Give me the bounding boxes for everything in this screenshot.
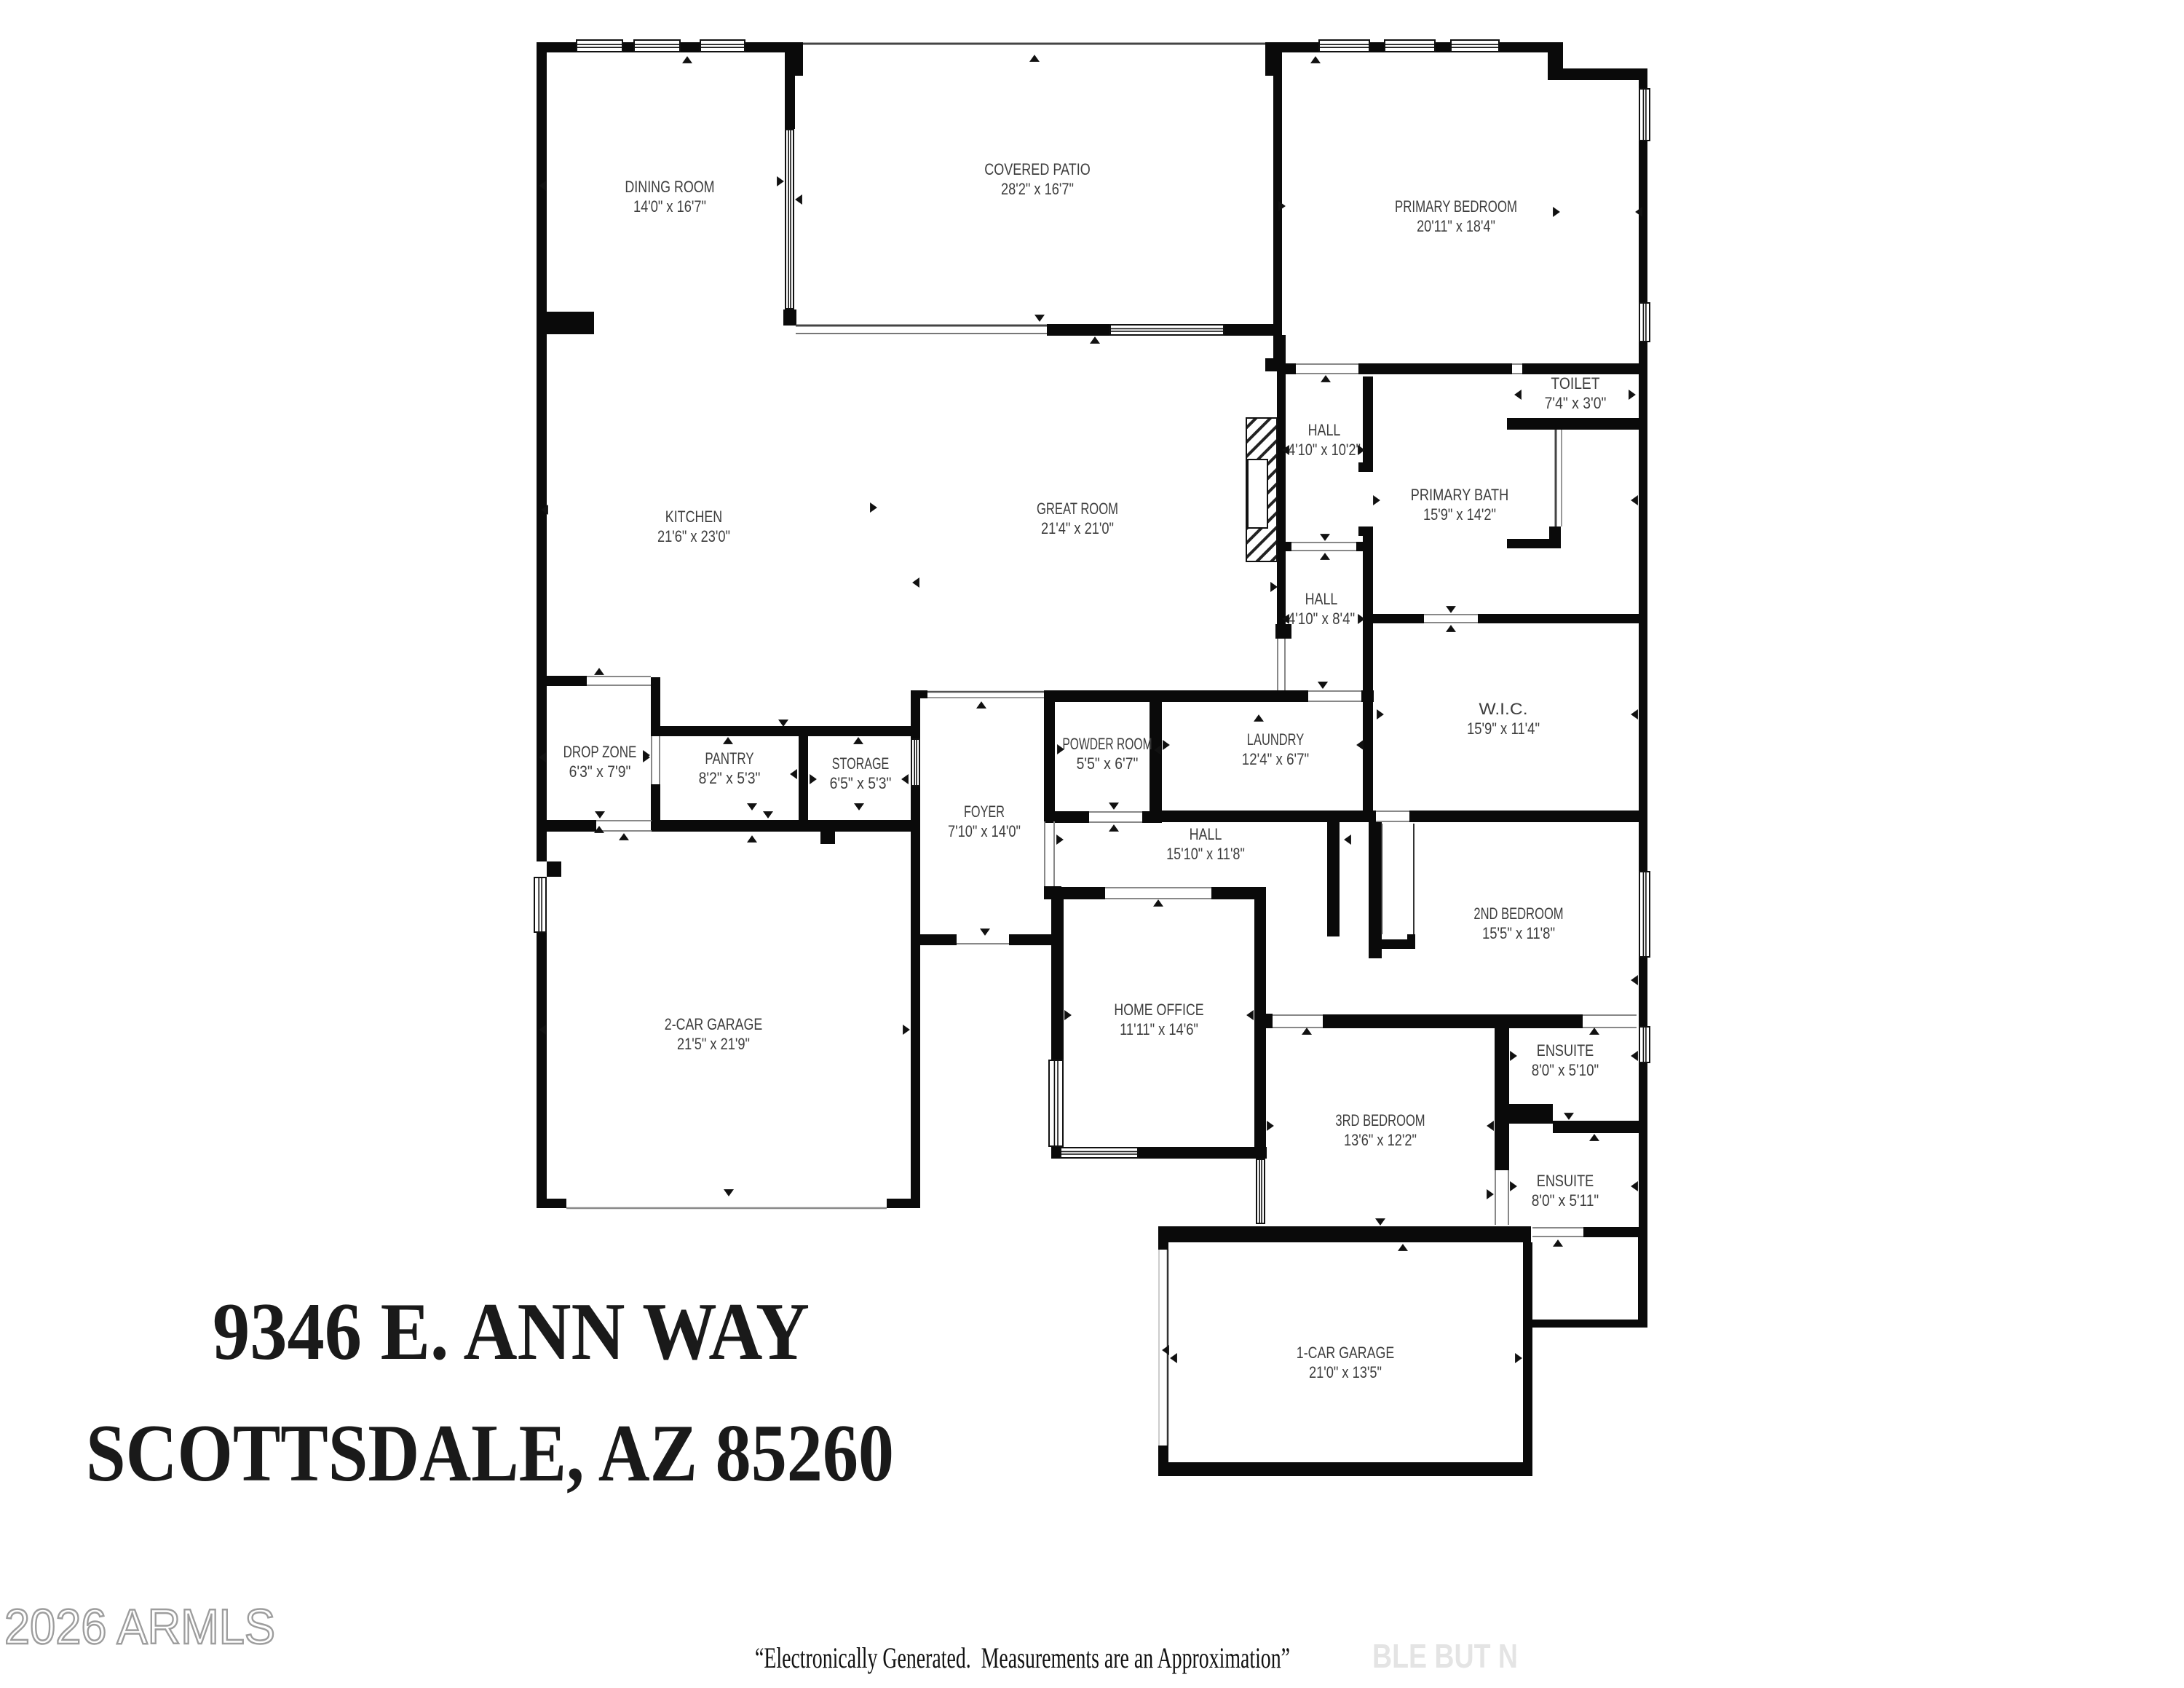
svg-text:5'5" x 6'7": 5'5" x 6'7" [1077,754,1139,773]
svg-text:8'0" x 5'11": 8'0" x 5'11" [1532,1191,1599,1210]
svg-text:PRIMARY BEDROOM: PRIMARY BEDROOM [1395,197,1517,216]
svg-text:2ND BEDROOM: 2ND BEDROOM [1473,904,1563,923]
svg-text:GREAT ROOM: GREAT ROOM [1037,500,1118,518]
svg-text:8'2" x 5'3": 8'2" x 5'3" [699,769,761,787]
svg-text:28'2" x 16'7": 28'2" x 16'7" [1001,180,1074,198]
svg-text:9346 E. ANN WAY: 9346 E. ANN WAY [213,1287,810,1377]
svg-text:STORAGE: STORAGE [832,754,889,773]
svg-text:ENSUITE: ENSUITE [1537,1172,1594,1190]
svg-text:2-CAR GARAGE: 2-CAR GARAGE [665,1015,762,1033]
svg-text:13'6" x 12'2": 13'6" x 12'2" [1344,1131,1417,1149]
svg-text:PANTRY: PANTRY [705,749,753,768]
svg-text:20'11" x 18'4": 20'11" x 18'4" [1417,217,1495,235]
svg-text:HOME OFFICE: HOME OFFICE [1114,1001,1203,1019]
svg-text:6'3" x 7'9": 6'3" x 7'9" [569,762,631,781]
svg-text:PRIMARY BATH: PRIMARY BATH [1411,486,1508,504]
svg-text:COVERED PATIO: COVERED PATIO [984,160,1091,178]
svg-text:14'0" x 16'7": 14'0" x 16'7" [633,197,706,216]
svg-text:3RD BEDROOM: 3RD BEDROOM [1335,1111,1425,1129]
svg-text:ENSUITE: ENSUITE [1537,1041,1594,1060]
svg-text:POWDER ROOM: POWDER ROOM [1062,735,1152,753]
svg-text:7'10" x 14'0": 7'10" x 14'0" [948,822,1021,840]
svg-text:11'11" x 14'6": 11'11" x 14'6" [1120,1020,1198,1038]
svg-text:TOILET: TOILET [1551,374,1599,393]
svg-text:21'5" x 21'9": 21'5" x 21'9" [677,1035,750,1053]
svg-text:1-CAR GARAGE: 1-CAR GARAGE [1297,1344,1394,1362]
svg-text:4'10" x 10'2": 4'10" x 10'2" [1288,441,1361,459]
svg-text:HALL: HALL [1305,590,1338,608]
svg-text:HALL: HALL [1308,421,1341,439]
svg-text:SCOTTSDALE, AZ 85260: SCOTTSDALE, AZ 85260 [86,1408,894,1499]
svg-text:21'4" x 21'0": 21'4" x 21'0" [1041,519,1114,537]
svg-text:LAUNDRY: LAUNDRY [1247,730,1305,749]
svg-text:21'6" x 23'0": 21'6" x 23'0" [657,527,730,545]
svg-text:15'5" x 11'8": 15'5" x 11'8" [1482,924,1555,942]
svg-text:12'4" x 6'7": 12'4" x 6'7" [1242,750,1309,768]
svg-text:7'4" x 3'0": 7'4" x 3'0" [1545,394,1607,412]
svg-text:15'9" x 14'2": 15'9" x 14'2" [1423,505,1496,524]
svg-text:4'10" x 8'4": 4'10" x 8'4" [1288,610,1355,628]
svg-text:DROP ZONE: DROP ZONE [563,743,637,761]
svg-text:FOYER: FOYER [964,802,1005,821]
svg-text:DINING ROOM: DINING ROOM [625,178,714,196]
svg-text:8'0" x 5'10": 8'0" x 5'10" [1532,1061,1599,1079]
svg-text:HALL: HALL [1190,825,1222,843]
svg-text:BLE BUT N: BLE BUT N [1372,1637,1518,1675]
svg-text:15'10" x 11'8": 15'10" x 11'8" [1166,845,1245,863]
svg-text:21'0" x 13'5": 21'0" x 13'5" [1309,1363,1382,1381]
svg-text:6'5" x 5'3": 6'5" x 5'3" [830,774,892,792]
svg-text:KITCHEN: KITCHEN [665,508,722,526]
svg-text:2026 ARMLS: 2026 ARMLS [4,1599,275,1655]
svg-text:15'9" x 11'4": 15'9" x 11'4" [1467,719,1540,738]
svg-text:W.I.C.: W.I.C. [1479,700,1527,718]
svg-text:“Electronically Generated. Me: “Electronically Generated. Measurements … [755,1641,1290,1674]
